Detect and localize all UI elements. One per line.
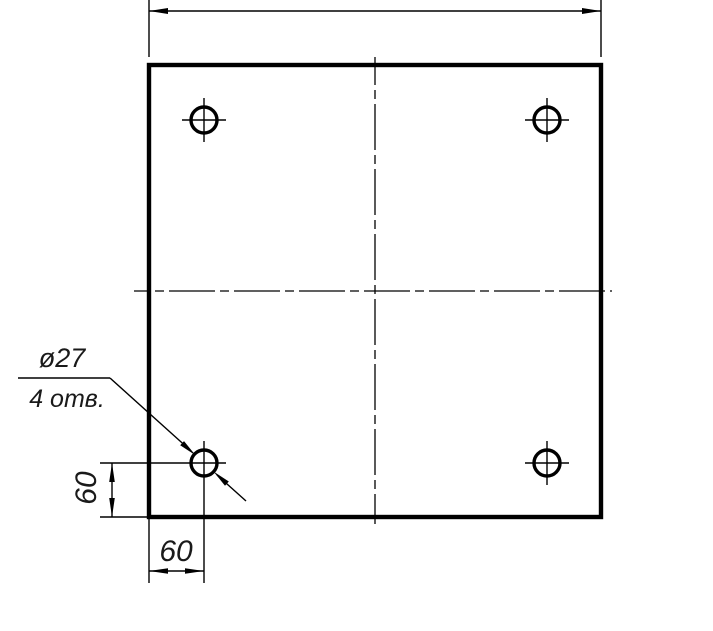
left-dim-arrow-top <box>109 463 115 482</box>
hole-top-right <box>525 98 569 142</box>
hole-top-left <box>182 98 226 142</box>
hole-bottom-right <box>525 441 569 485</box>
plate-drawing: ø27 4 отв. 60 60 <box>0 0 713 631</box>
top-dim-arrow-right <box>582 8 601 14</box>
left-dim-arrow-bottom <box>109 498 115 517</box>
hole-diameter-label: ø27 <box>39 343 87 373</box>
dim-left-60: 60 <box>70 463 149 517</box>
callout-arrow-lower <box>214 472 229 486</box>
drawing-canvas: ø27 4 отв. 60 60 <box>0 0 713 631</box>
callout-arrow-upper <box>180 441 195 455</box>
hole-callout: ø27 4 отв. <box>18 343 246 501</box>
bottom-dim-value: 60 <box>159 535 193 568</box>
bottom-dim-arrow-right <box>185 568 204 574</box>
hole-count-label: 4 отв. <box>29 385 105 413</box>
dim-bottom-60: 60 <box>149 517 204 583</box>
top-dim-arrow-left <box>149 8 168 14</box>
bottom-dim-arrow-left <box>149 568 168 574</box>
left-dim-value: 60 <box>70 471 103 505</box>
